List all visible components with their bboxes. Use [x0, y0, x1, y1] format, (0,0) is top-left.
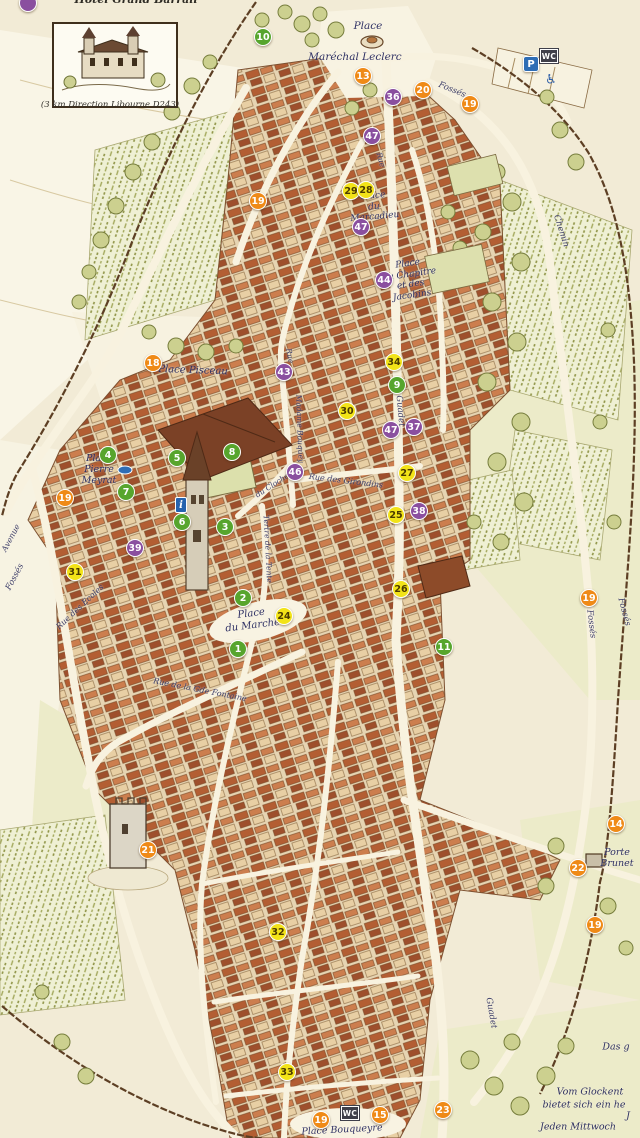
- tree-icon: [607, 515, 621, 529]
- note-1: Das g: [602, 1041, 629, 1052]
- label-porte-brunet: Porte Brunet: [600, 847, 633, 869]
- tree-icon: [552, 122, 568, 138]
- tree-icon: [512, 253, 530, 271]
- street-madame-bouquey: Madame Bouquey: [293, 395, 304, 464]
- tree-icon: [538, 878, 554, 894]
- tree-icon: [168, 338, 184, 354]
- marker-18: 18: [144, 354, 162, 372]
- marker-47: 47: [352, 218, 370, 236]
- marker-21: 21: [139, 841, 157, 859]
- street-rue-1: Rue: [283, 348, 294, 364]
- bus-symbol: [118, 466, 132, 474]
- chateau-drawing: [54, 24, 172, 102]
- inset-vignette: [52, 22, 178, 108]
- marker-6: 6: [173, 513, 191, 531]
- marker-3: 3: [216, 518, 234, 536]
- map-title-partial: Hôtel Grand Barrail: [36, 0, 236, 6]
- tree-icon: [483, 293, 501, 311]
- tree-icon: [313, 7, 327, 21]
- tree-icon: [504, 1034, 520, 1050]
- marker-4: 4: [99, 446, 117, 464]
- tree-icon: [503, 193, 521, 211]
- tree-icon: [72, 295, 86, 309]
- tree-icon: [478, 373, 496, 391]
- tree-icon: [537, 1067, 555, 1085]
- tree-icon: [600, 898, 616, 914]
- parking-badge: P: [523, 56, 539, 72]
- tree-icon: [35, 985, 49, 999]
- marker-5: 5: [168, 449, 186, 467]
- marker-8: 8: [223, 443, 241, 461]
- tree-icon: [108, 198, 124, 214]
- tree-icon: [294, 16, 310, 32]
- tree-icon: [278, 5, 292, 19]
- marker-31: 31: [66, 563, 84, 581]
- info-badge: i: [175, 497, 187, 513]
- note-4: J: [626, 1110, 630, 1121]
- map-canvas: Hôtel Grand Barrail (3 km Direction Libo…: [0, 0, 640, 1138]
- marker-38: 38: [410, 502, 428, 520]
- marker-7: 7: [117, 483, 135, 501]
- marker-19: 19: [580, 589, 598, 607]
- tree-icon: [345, 101, 359, 115]
- tree-icon: [511, 1097, 529, 1115]
- tree-icon: [461, 1051, 479, 1069]
- marker-14: 14: [607, 815, 625, 833]
- marker-22: 22: [569, 859, 587, 877]
- marker-19: 19: [249, 192, 267, 210]
- tree-icon: [142, 325, 156, 339]
- tree-icon: [184, 78, 200, 94]
- tree-icon: [548, 838, 564, 854]
- marker-39: 39: [126, 539, 144, 557]
- tree-icon: [198, 344, 214, 360]
- map-artwork: [0, 0, 640, 1138]
- tree-icon: [508, 333, 526, 351]
- marker-43: 43: [275, 363, 293, 381]
- label-place-leclerc-2: Maréchal Leclerc: [308, 51, 401, 63]
- tree-icon: [93, 232, 109, 248]
- marker-47: 47: [382, 421, 400, 439]
- marker-28: 28: [357, 181, 375, 199]
- marker-32: 32: [269, 923, 287, 941]
- tree-icon: [363, 83, 377, 97]
- accessible-badge: ♿: [545, 73, 557, 88]
- tree-icon: [125, 164, 141, 180]
- marker-44: 44: [375, 271, 393, 289]
- tree-icon: [488, 453, 506, 471]
- tree-icon: [619, 941, 633, 955]
- note-5: Jeden Mittwoch: [540, 1121, 616, 1132]
- note-2: Vom Glockent: [557, 1086, 624, 1097]
- tree-icon: [54, 1034, 70, 1050]
- marker-30: 30: [338, 402, 356, 420]
- tree-icon: [540, 90, 554, 104]
- tree-icon: [558, 1038, 574, 1054]
- marker-47: 47: [363, 127, 381, 145]
- tree-icon: [485, 1077, 503, 1095]
- tree-icon: [568, 154, 584, 170]
- tree-icon: [328, 22, 344, 38]
- tree-icon: [229, 339, 243, 353]
- marker-10: 10: [254, 28, 272, 46]
- marker-34: 34: [385, 353, 403, 371]
- fountain: [361, 36, 383, 48]
- marker-24: 24: [275, 607, 293, 625]
- marker-20: 20: [414, 81, 432, 99]
- marker-27: 27: [398, 464, 416, 482]
- tree-icon: [441, 205, 455, 219]
- label-place-leclerc-1: Place: [354, 20, 383, 32]
- tree-icon: [82, 265, 96, 279]
- wc-badge: WC: [341, 1106, 359, 1120]
- marker-25: 25: [387, 506, 405, 524]
- tree-icon: [593, 415, 607, 429]
- inset-caption: (3 km Direction Libourne D243): [15, 100, 205, 110]
- marker-11: 11: [435, 638, 453, 656]
- tree-icon: [255, 13, 269, 27]
- marker-23: 23: [434, 1101, 452, 1119]
- tree-icon: [512, 413, 530, 431]
- tree-icon: [467, 515, 481, 529]
- marker-9: 9: [388, 376, 406, 394]
- note-3: bietet sich ein he: [543, 1099, 626, 1110]
- tree-icon: [493, 534, 509, 550]
- marker-19: 19: [56, 489, 74, 507]
- marker-13: 13: [354, 67, 372, 85]
- marker-1: 1: [229, 640, 247, 658]
- tree-icon: [475, 224, 491, 240]
- marker-19: 19: [312, 1111, 330, 1129]
- tree-icon: [144, 134, 160, 150]
- marker-2: 2: [234, 589, 252, 607]
- marker-26: 26: [392, 580, 410, 598]
- marker-36: 36: [384, 88, 402, 106]
- marker-37: 37: [405, 418, 423, 436]
- wc-badge: WC: [540, 49, 558, 63]
- marker-19: 19: [461, 95, 479, 113]
- tree-icon: [601, 323, 615, 337]
- tree-icon: [78, 1068, 94, 1084]
- marker-15: 15: [371, 1106, 389, 1124]
- marker-19: 19: [586, 916, 604, 934]
- tree-icon: [305, 33, 319, 47]
- marker-46: 46: [286, 463, 304, 481]
- tree-icon: [515, 493, 533, 511]
- tree-icon: [203, 55, 217, 69]
- marker-33: 33: [278, 1063, 296, 1081]
- label-place-pisceau: Place Pisceau: [158, 364, 228, 378]
